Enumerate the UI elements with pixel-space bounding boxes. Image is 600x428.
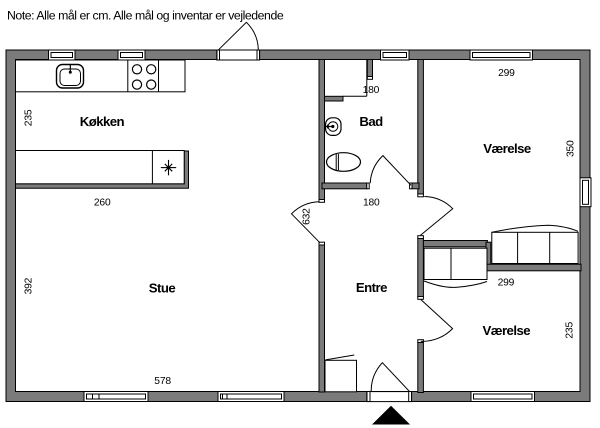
svg-text:260: 260: [94, 197, 111, 208]
svg-text:578: 578: [154, 376, 171, 387]
svg-text:180: 180: [363, 85, 380, 96]
svg-text:392: 392: [24, 277, 35, 294]
svg-text:Stue: Stue: [149, 280, 176, 295]
svg-text:299: 299: [498, 278, 515, 289]
svg-text:Værelse: Værelse: [483, 323, 531, 338]
svg-text:180: 180: [363, 197, 380, 208]
svg-text:350: 350: [566, 140, 577, 157]
svg-text:Køkken: Køkken: [80, 114, 125, 129]
svg-text:Værelse: Værelse: [483, 141, 531, 156]
svg-text:235: 235: [565, 322, 576, 339]
svg-text:632: 632: [301, 208, 312, 225]
svg-text:299: 299: [498, 68, 515, 79]
svg-text:Entre: Entre: [356, 280, 387, 295]
svg-text:235: 235: [23, 109, 34, 126]
svg-text:Note: Alle mål er cm. Alle mål: Note: Alle mål er cm. Alle mål og invent…: [7, 8, 284, 22]
svg-text:Bad: Bad: [359, 114, 383, 129]
